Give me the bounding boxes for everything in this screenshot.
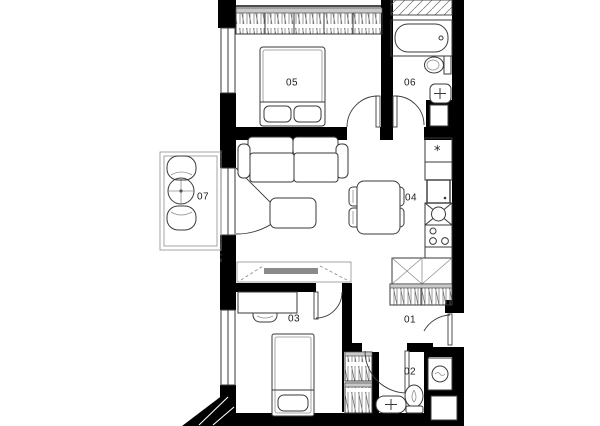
sink-icon xyxy=(430,84,451,103)
sliding-wardrobe-icon xyxy=(237,262,351,282)
room-label-05: 05 xyxy=(286,78,298,89)
toilet-icon xyxy=(425,56,452,74)
door-swing xyxy=(314,292,342,319)
sofa-icon xyxy=(238,137,348,182)
fridge-icon: * xyxy=(425,138,452,162)
tall-cabinet-icon xyxy=(392,258,452,284)
window-bedroom-03 xyxy=(221,310,235,385)
living-room-04 xyxy=(237,137,404,282)
washing-machine-icon xyxy=(428,358,452,390)
sink-icon xyxy=(376,396,406,413)
door-swing xyxy=(347,96,380,127)
hallway-01 xyxy=(390,284,452,345)
balcony xyxy=(160,152,221,250)
balcony-table-icon xyxy=(168,178,194,204)
wardrobe-icon xyxy=(236,8,382,34)
window-bedroom-05 xyxy=(221,28,235,93)
bedroom-03 xyxy=(238,292,342,416)
counter xyxy=(425,162,452,180)
counter xyxy=(425,247,452,258)
toilet-icon xyxy=(405,385,423,413)
floor-plan: * xyxy=(0,0,600,426)
entrance-door-swing xyxy=(424,314,452,345)
bedroom-05 xyxy=(236,8,382,127)
wardrobe-icon xyxy=(390,284,452,305)
room-label-04: 04 xyxy=(405,193,417,204)
room-label-06: 06 xyxy=(404,78,416,89)
oven-icon xyxy=(427,180,450,203)
room-label-03: 03 xyxy=(288,314,300,325)
balcony-chair-icon xyxy=(167,156,196,180)
single-bed-icon xyxy=(272,334,314,416)
bathtub-icon xyxy=(391,20,452,56)
stove-icon xyxy=(425,225,452,247)
fridge-symbol: * xyxy=(434,144,441,159)
dining-set-icon xyxy=(349,181,404,234)
room-label-07: 07 xyxy=(197,192,209,203)
door-swing xyxy=(393,96,424,127)
shaft-hatch xyxy=(391,0,452,15)
room-label-01: 01 xyxy=(404,315,416,326)
balcony-chair-icon xyxy=(167,206,196,230)
built-in-closet xyxy=(345,352,372,413)
coffee-table-icon xyxy=(270,198,316,228)
room-label-02: 02 xyxy=(404,367,416,378)
floor-plan-drawing: * xyxy=(0,0,600,426)
kitchen-sink-icon xyxy=(425,203,452,225)
